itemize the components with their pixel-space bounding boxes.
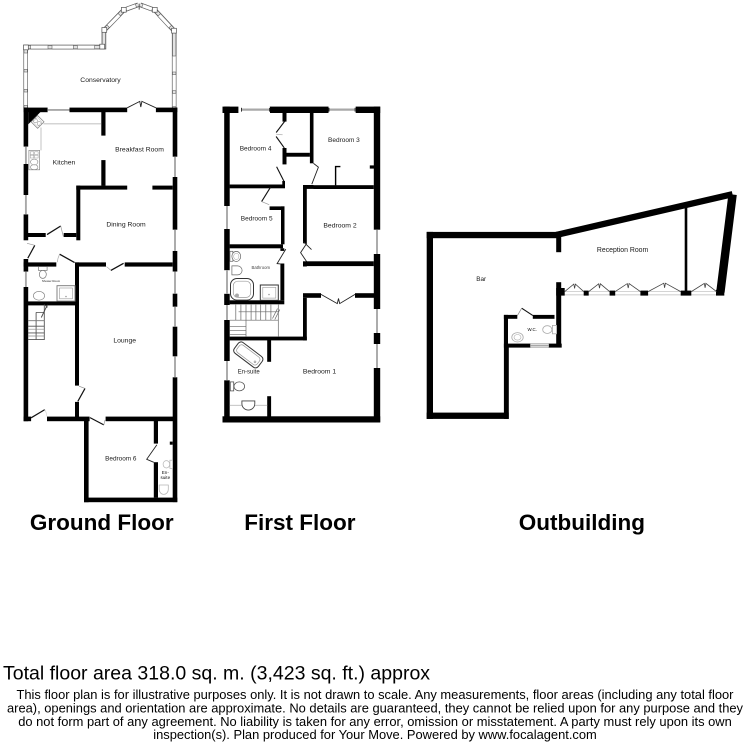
svg-text:Kitchen: Kitchen	[53, 159, 76, 166]
svg-text:Shower Room: Shower Room	[42, 279, 61, 283]
svg-text:Bedroom 5: Bedroom 5	[241, 215, 273, 222]
svg-text:Reception Room: Reception Room	[597, 247, 649, 254]
svg-text:Bedroom 2: Bedroom 2	[323, 223, 356, 230]
svg-text:Bedroom 4: Bedroom 4	[240, 145, 272, 152]
svg-text:Outbuilding: Outbuilding	[519, 510, 645, 535]
svg-text:Bathroom: Bathroom	[251, 265, 270, 270]
svg-text:Lounge: Lounge	[113, 337, 136, 344]
svg-text:First Floor: First Floor	[244, 510, 355, 535]
svg-text:Breakfast Room: Breakfast Room	[115, 146, 164, 153]
svg-text:inspection(s). Plan produced f: inspection(s). Plan produced for Your Mo…	[153, 727, 597, 742]
svg-text:Bedroom 6: Bedroom 6	[105, 456, 137, 463]
svg-text:Bedroom 3: Bedroom 3	[328, 137, 360, 144]
svg-text:Bar: Bar	[476, 276, 487, 283]
svg-text:W.C.: W.C.	[527, 327, 537, 332]
svg-text:Ground Floor: Ground Floor	[30, 510, 174, 535]
svg-text:suite: suite	[160, 475, 170, 480]
svg-text:En-suite: En-suite	[238, 370, 261, 376]
svg-text:Conservatory: Conservatory	[80, 77, 121, 84]
svg-text:Dining Room: Dining Room	[106, 221, 146, 228]
svg-text:Bedroom 1: Bedroom 1	[303, 368, 336, 375]
svg-text:Total floor area 318.0 sq. m.: Total floor area 318.0 sq. m. (3,423 sq.…	[3, 663, 430, 685]
